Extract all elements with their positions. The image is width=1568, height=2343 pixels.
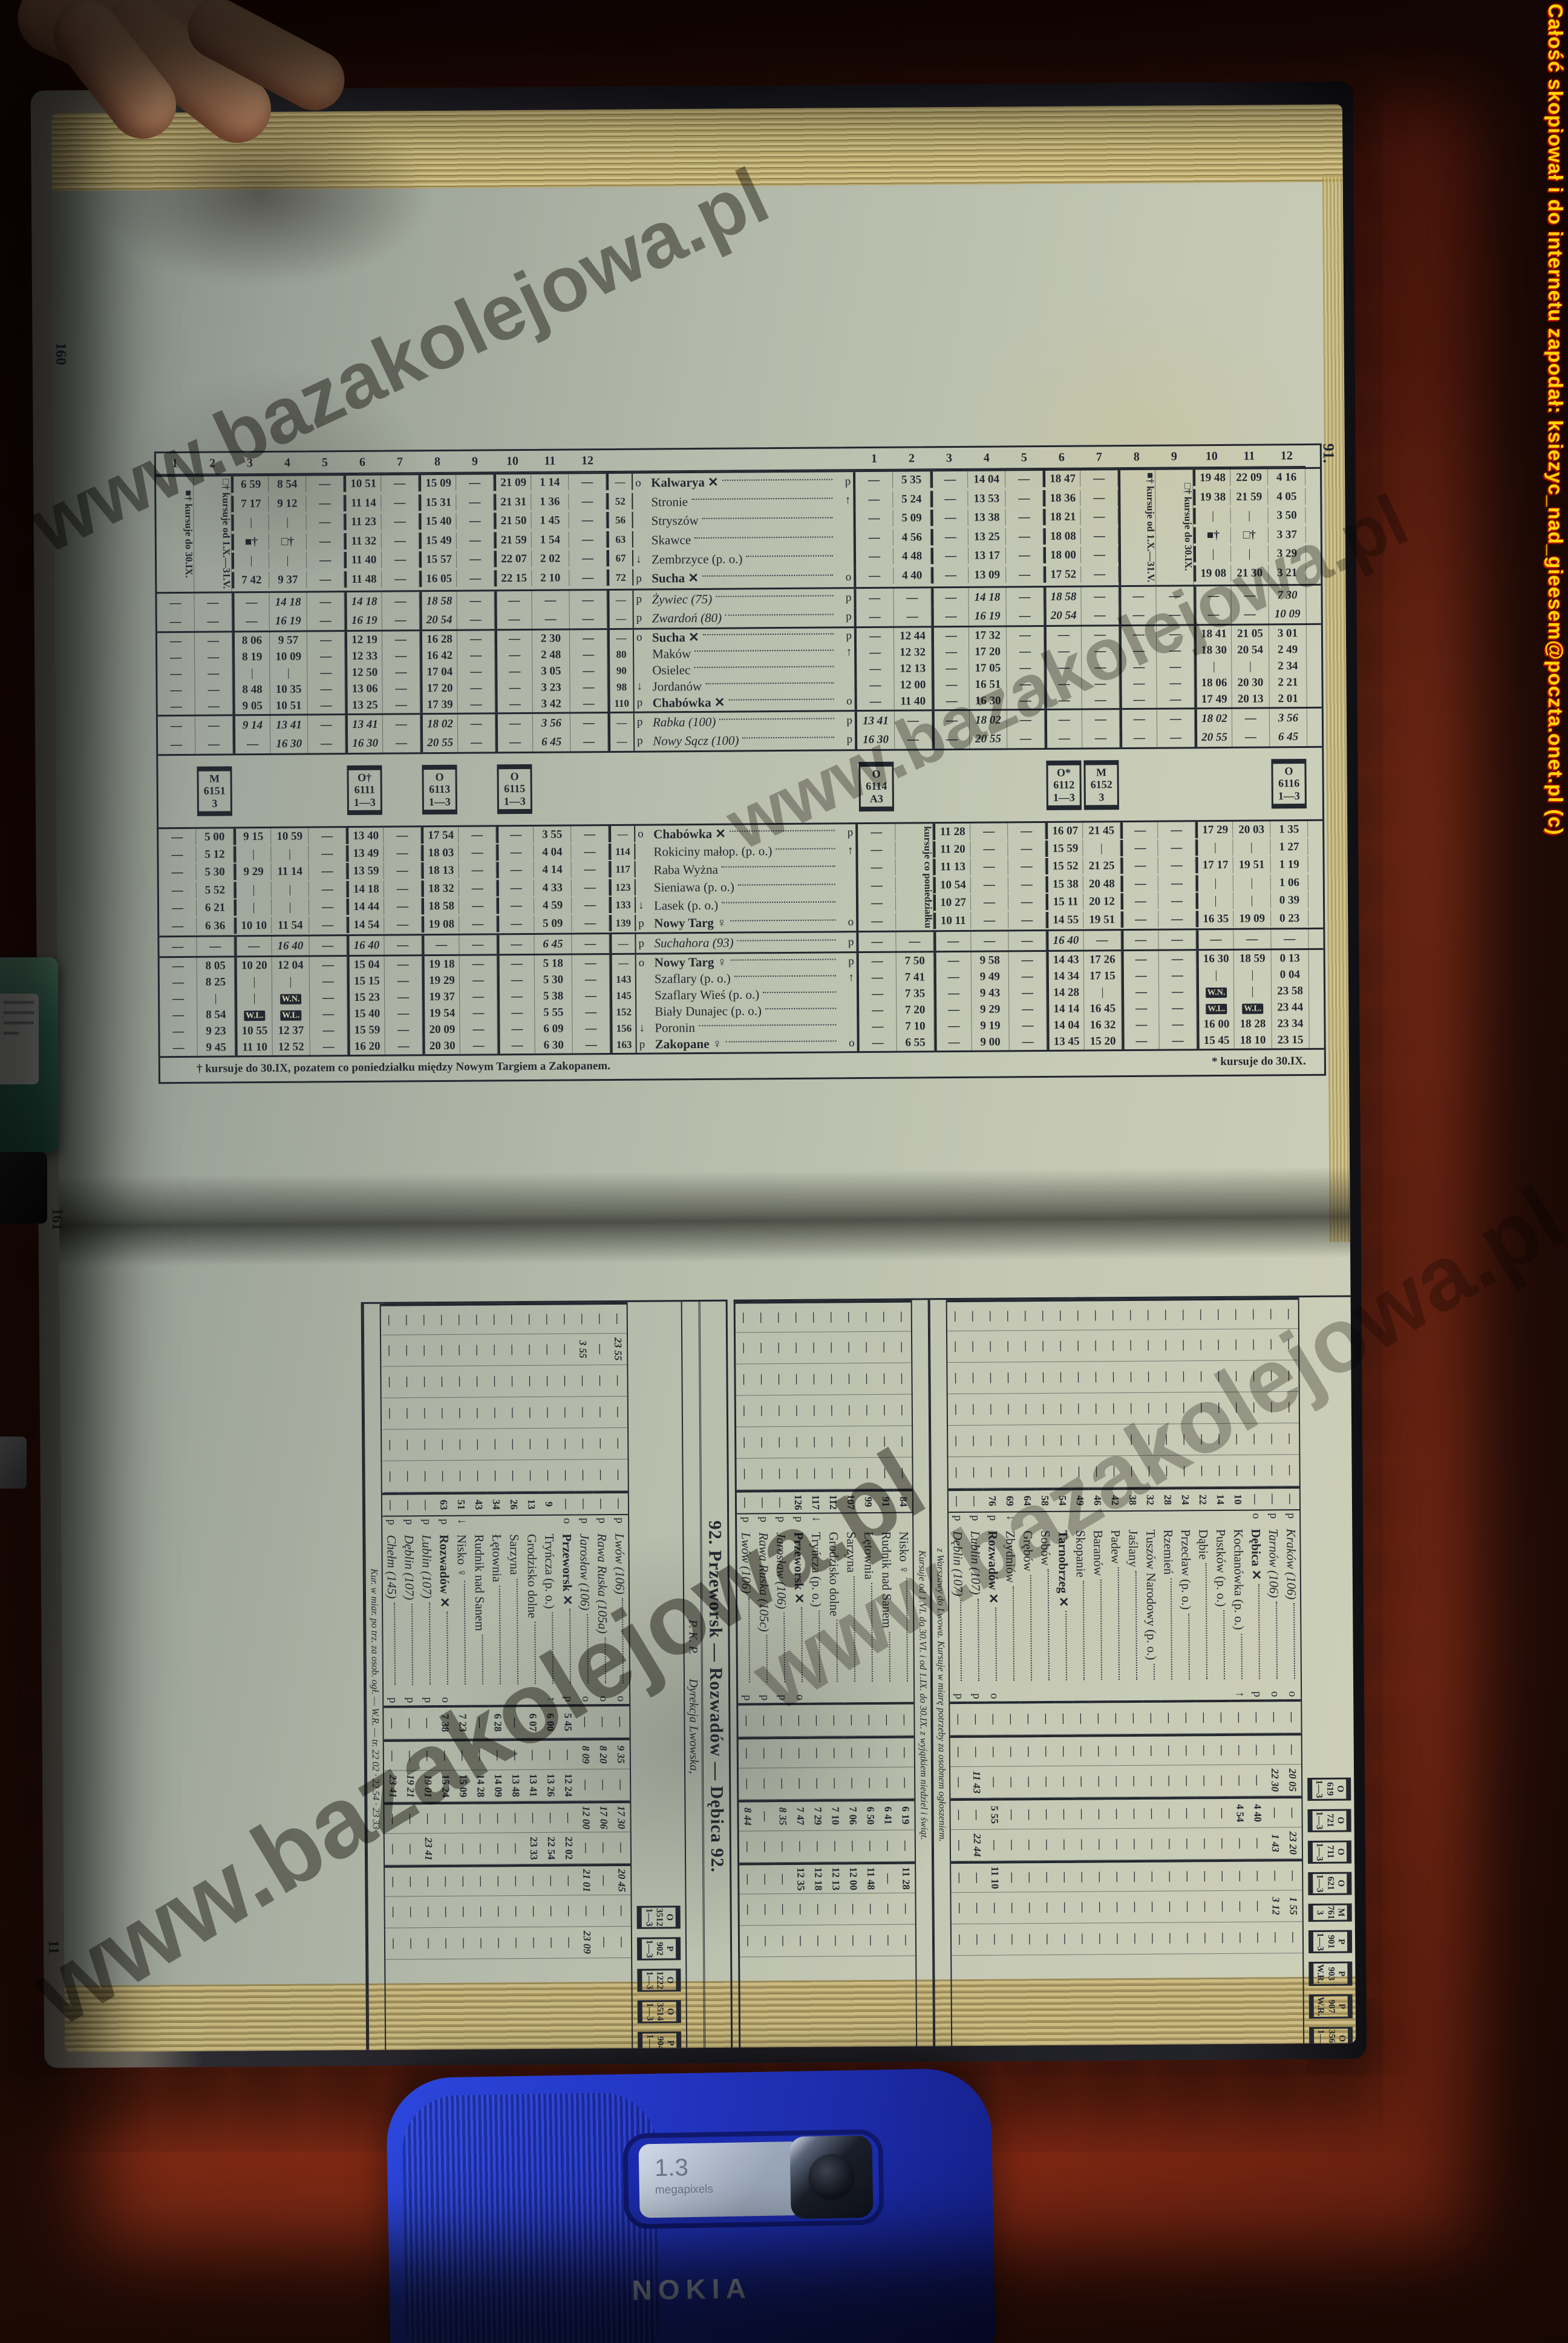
time-cell: — xyxy=(844,1830,862,1862)
time-cell: — xyxy=(969,1924,987,1956)
time-cell: — xyxy=(572,934,609,953)
station-cell: pPrzeworsk ✕o xyxy=(789,1514,808,1705)
time-cell: — xyxy=(1158,1393,1176,1424)
km-cell: 145 xyxy=(610,988,636,1004)
time-cell: — xyxy=(1044,626,1082,643)
time-cell: 23 55 xyxy=(609,1334,627,1365)
time-cell: — xyxy=(532,591,569,609)
time-cell: — xyxy=(402,1739,419,1771)
time-cell: — xyxy=(1161,1702,1178,1734)
station-cell: Stronie↑ xyxy=(633,491,855,512)
time-cell: | xyxy=(234,846,271,862)
time-cell: 13 09 xyxy=(969,566,1006,583)
km-cell: — xyxy=(400,1492,417,1516)
time-cell: 13 49 xyxy=(346,845,384,862)
time-cell: 18 41 xyxy=(1194,625,1232,641)
time-cell: — xyxy=(457,680,495,696)
time-cell: — xyxy=(195,716,233,735)
time-cell: — xyxy=(1082,675,1119,692)
station-name: Nisko ♀ xyxy=(897,1532,912,1575)
dotted-leader xyxy=(1188,1613,1190,1679)
time-cell: | xyxy=(1230,508,1268,524)
time-cell: — xyxy=(1126,1797,1144,1829)
time-cell: — xyxy=(557,1334,574,1365)
time-cell: — xyxy=(456,1865,473,1896)
time-cell: — xyxy=(310,1038,348,1055)
station-cell: Tuszów Narodowy (p. o.) xyxy=(1142,1512,1160,1703)
time-cell: — xyxy=(384,936,422,954)
time-cell: 18 06 xyxy=(1194,674,1232,690)
time-cell: — xyxy=(1231,1702,1249,1734)
dotted-leader xyxy=(691,498,832,500)
dotted-leader xyxy=(694,666,834,669)
time-cell: 16 30 xyxy=(1197,951,1234,967)
train-number-box: O61161—3 xyxy=(1271,759,1307,808)
time-cell: — xyxy=(771,1364,789,1395)
time-cell xyxy=(606,448,855,472)
time-cell: — xyxy=(307,533,344,549)
station-cell: pRawa Ruska (105a)o xyxy=(593,1515,612,1706)
dotted-leader xyxy=(1030,1575,1032,1680)
station-cell: Jaślany xyxy=(1124,1512,1143,1703)
time-cell: 21 30 xyxy=(1231,565,1269,581)
station-name: Jarosław (106) xyxy=(774,1532,789,1609)
time-cell: 21 45 xyxy=(1083,822,1120,839)
departure-marker: p xyxy=(578,1518,591,1533)
time-cell: — xyxy=(495,663,532,679)
time-cell: — xyxy=(437,1833,455,1865)
station-name: Lwów (106) xyxy=(739,1532,754,1593)
time-cell: — xyxy=(569,512,607,528)
station-cell: ↓Jordanów xyxy=(634,677,857,695)
column-header: 5 xyxy=(1005,447,1043,469)
time-cell: — xyxy=(931,548,969,564)
time-cell: □† xyxy=(1231,526,1269,543)
km-cell: — xyxy=(609,825,635,842)
time-cell: — xyxy=(950,1767,968,1798)
arrival-marker: p xyxy=(386,1688,399,1703)
station-name: Chabówka ✕ xyxy=(653,826,726,842)
time-cell: — xyxy=(1197,1922,1215,1954)
dotted-leader xyxy=(446,1611,448,1685)
time-cell: — xyxy=(1263,1329,1281,1360)
dotted-leader xyxy=(694,536,833,539)
time-cell: — xyxy=(1009,1001,1047,1017)
time-cell: — xyxy=(569,591,607,609)
time-cell: — xyxy=(856,548,893,565)
time-cell: — xyxy=(931,588,969,606)
dotted-leader xyxy=(517,1579,518,1684)
time-cell: — xyxy=(1044,643,1082,659)
station-cell: pRawa Ruska (105c)p xyxy=(754,1514,773,1705)
time-cell: — xyxy=(160,974,197,991)
time-cell: — xyxy=(1008,931,1046,950)
departure-marker: ↓ xyxy=(455,1519,468,1535)
time-cell: 3 21 xyxy=(1269,565,1306,581)
station-cell: Łętownia xyxy=(488,1516,507,1707)
time-cell: — xyxy=(459,827,496,843)
time-cell: W.L. xyxy=(235,1006,272,1023)
time-cell: — xyxy=(739,1768,756,1800)
time-cell: — xyxy=(457,513,494,529)
time-cell: — xyxy=(1121,893,1158,909)
time-cell: 4 16 xyxy=(1268,469,1305,485)
time-cell: — xyxy=(572,1020,610,1037)
time-cell: — xyxy=(490,1801,508,1833)
column-header: 10 xyxy=(1193,446,1230,468)
station-cell: Kochanówka (p. o.)↑ xyxy=(1229,1511,1248,1702)
time-cell: — xyxy=(1001,1457,1019,1488)
time-cell: — xyxy=(1281,1360,1299,1392)
time-cell: — xyxy=(1229,1424,1246,1455)
vertical-note: ■† kursuje do 30.IX. xyxy=(156,477,194,592)
time-cell: — xyxy=(1018,1362,1036,1394)
metal-clip xyxy=(0,1437,27,1489)
time-cell: 1 35 xyxy=(1270,821,1308,837)
time-cell: — xyxy=(308,715,345,734)
km-cell: — xyxy=(575,1491,593,1515)
dotted-leader xyxy=(737,939,836,941)
time-cell: — xyxy=(455,1802,472,1833)
time-cell: | xyxy=(1084,984,1122,1000)
dotted-leader xyxy=(719,718,834,720)
time-cell: — xyxy=(754,1427,771,1458)
time-cell: 2 34 xyxy=(1269,658,1307,674)
time-cell: — xyxy=(1000,1331,1018,1362)
time-cell: — xyxy=(1108,1703,1126,1734)
time-cell: — xyxy=(416,1335,434,1366)
time-cell: 11 14 xyxy=(272,863,309,880)
train-number-box: O12221—3 xyxy=(638,1968,681,1992)
time-cell: 9 58 xyxy=(972,952,1009,969)
time-cell: 23 34 xyxy=(1272,1015,1309,1032)
time-cell: — xyxy=(1119,642,1157,658)
time-cell: — xyxy=(1019,1457,1036,1488)
time-cell: 5 24 xyxy=(893,491,930,507)
station-cell: Łętownia xyxy=(860,1513,878,1705)
time-cell: — xyxy=(1232,605,1269,623)
station-cell: pRozwadów ✕o xyxy=(984,1513,1002,1704)
time-cell: 15 57 xyxy=(419,551,457,568)
time-cell: — xyxy=(1109,1797,1126,1829)
time-cell: — xyxy=(1044,659,1082,675)
time-cell: — xyxy=(806,1301,823,1332)
departure-marker: p xyxy=(792,1516,805,1532)
time-cell: — xyxy=(490,1833,508,1864)
time-cell: — xyxy=(1056,1798,1074,1829)
dotted-leader xyxy=(429,1602,431,1685)
time-cell: — xyxy=(1119,626,1157,642)
time-cell: 9 29 xyxy=(972,1001,1009,1018)
time-cell: 23 41 xyxy=(420,1833,437,1865)
time-cell: | xyxy=(234,899,272,916)
time-cell: — xyxy=(160,1040,198,1056)
time-cell: — xyxy=(1053,1362,1071,1394)
time-cell: — xyxy=(158,828,196,845)
time-cell: — xyxy=(610,1397,627,1428)
time-cell: — xyxy=(859,1395,877,1426)
station-cell: pLublin (107)p xyxy=(418,1516,437,1708)
dotted-leader xyxy=(1154,1663,1155,1679)
time-cell: | xyxy=(1233,874,1271,891)
time-cell: — xyxy=(489,1738,507,1770)
time-cell: — xyxy=(774,1705,791,1737)
time-cell: — xyxy=(384,880,422,897)
time-cell: — xyxy=(934,952,972,969)
time-cell: — xyxy=(1073,1703,1091,1735)
time-cell: — xyxy=(459,862,497,879)
time-cell: — xyxy=(420,1865,438,1896)
time-cell: — xyxy=(828,1925,845,1956)
time-cell: — xyxy=(572,915,609,931)
time-cell: — xyxy=(965,1426,983,1457)
station-cell: ↓Lasek (p. o.) xyxy=(636,896,858,915)
time-cell: 5 09 xyxy=(893,510,930,526)
time-cell: — xyxy=(384,899,422,915)
km-cell: 58 xyxy=(1036,1488,1054,1512)
time-cell: — xyxy=(757,1863,774,1894)
time-cell: — xyxy=(1211,1361,1229,1392)
departure-marker: ↓ xyxy=(1004,1515,1017,1530)
time-cell: — xyxy=(472,1833,490,1864)
time-cell: — xyxy=(754,1364,771,1395)
departure-marker: p xyxy=(757,1516,770,1532)
time-cell: 11 48 xyxy=(862,1862,880,1893)
time-cell: 4 14 xyxy=(534,862,572,878)
dotted-leader xyxy=(722,866,835,868)
time-cell: — xyxy=(1018,1425,1036,1457)
time-cell: — xyxy=(195,649,232,665)
station-cell: Sobów xyxy=(1036,1512,1055,1703)
km-cell: 72 xyxy=(607,569,633,586)
time-cell: — xyxy=(307,648,345,664)
departure-marker: p xyxy=(969,1515,982,1531)
time-cell: — xyxy=(930,490,968,506)
time-cell: — xyxy=(381,475,419,491)
arrival-marker: ↑ xyxy=(544,1688,557,1702)
time-cell: — xyxy=(1082,659,1119,675)
time-cell: — xyxy=(1006,588,1044,606)
time-cell: — xyxy=(310,957,347,973)
time-cell: 13 25 xyxy=(345,696,383,713)
station-name: Jarosław (106) xyxy=(577,1533,593,1610)
time-cell: — xyxy=(454,1739,472,1771)
time-cell: 14 44 xyxy=(347,899,384,915)
time-cell: — xyxy=(593,1460,610,1491)
time-cell: 11 10 xyxy=(986,1861,1004,1893)
time-cell: — xyxy=(435,1461,452,1492)
time-cell: — xyxy=(806,1364,824,1395)
time-cell: — xyxy=(825,1458,842,1489)
time-cell: — xyxy=(1073,1766,1091,1798)
column-header: 12 xyxy=(569,450,606,472)
time-cell: — xyxy=(572,897,609,913)
time-cell: — xyxy=(1122,951,1159,968)
departure-marker: ↓ xyxy=(636,680,652,693)
column-header: 4 xyxy=(968,447,1005,469)
time-cell: | xyxy=(1197,967,1234,983)
time-cell: — xyxy=(1089,1456,1106,1487)
time-cell: — xyxy=(855,472,893,488)
time-cell: — xyxy=(1284,1733,1301,1765)
time-cell: 18 47 xyxy=(1043,471,1080,487)
time-cell: 10 54 xyxy=(933,877,971,893)
time-cell: — xyxy=(195,681,232,698)
time-cell: — xyxy=(1123,1299,1140,1330)
margin-number-161: 161 xyxy=(48,1208,65,1231)
time-cell: — xyxy=(1121,876,1158,892)
time-cell: — xyxy=(857,628,894,644)
time-cell: — xyxy=(1074,1860,1091,1892)
time-cell: 14 18 xyxy=(344,592,382,611)
time-cell: — xyxy=(1106,1424,1123,1456)
time-cell: 7 29 xyxy=(809,1800,827,1831)
time-cell: — xyxy=(1021,1798,1039,1829)
dotted-leader xyxy=(995,1607,997,1680)
time-cell: — xyxy=(572,861,609,877)
time-cell: — xyxy=(469,1397,487,1429)
time-cell: — xyxy=(523,1429,540,1460)
km-cell: — xyxy=(608,732,635,750)
time-cell: — xyxy=(1070,1299,1088,1331)
time-cell: — xyxy=(1091,1860,1109,1892)
arrival-marker: o xyxy=(838,695,852,708)
time-cell: — xyxy=(1123,1330,1140,1362)
departure-marker: ↓ xyxy=(809,1516,823,1532)
time-cell: | xyxy=(1232,658,1269,674)
time-cell: — xyxy=(859,1018,897,1035)
time-cell: — xyxy=(495,732,533,751)
station-name: Tarnobrzeg ✕ xyxy=(1056,1530,1071,1607)
time-cell: — xyxy=(1008,912,1046,928)
time-cell: — xyxy=(572,879,609,896)
time-cell: — xyxy=(382,647,420,664)
station-name: Dęblin (107) xyxy=(950,1531,966,1596)
time-cell: — xyxy=(809,1705,826,1737)
km-cell: 63 xyxy=(607,531,633,548)
station-cell: Rudnik nad Sanem xyxy=(877,1513,896,1705)
time-cell: — xyxy=(159,882,197,899)
time-cell: — xyxy=(1081,566,1119,582)
time-cell: — xyxy=(195,698,233,714)
km-cell: 98 xyxy=(607,678,634,695)
time-cell: 23 41 xyxy=(385,1771,402,1802)
time-cell: — xyxy=(857,693,895,709)
time-cell: 20 55 xyxy=(970,729,1007,748)
time-cell: — xyxy=(740,1894,757,1925)
time-cell: — xyxy=(1123,1393,1141,1424)
time-cell: — xyxy=(879,1768,897,1799)
km-cell: 24 xyxy=(1177,1487,1194,1511)
time-cell: — xyxy=(457,591,494,610)
time-cell: — xyxy=(307,552,344,568)
time-cell: — xyxy=(987,1893,1004,1924)
time-cell: 12 50 xyxy=(345,664,382,680)
train-number-box: P9021—3 xyxy=(637,1937,681,1961)
time-cell: 22 54 xyxy=(543,1833,560,1864)
time-cell: 5 55 xyxy=(986,1798,1004,1830)
dotted-leader xyxy=(1171,1578,1172,1679)
departure-marker: p xyxy=(636,572,652,585)
time-cell: 18 30 xyxy=(1194,641,1232,658)
time-cell: — xyxy=(158,716,195,735)
time-cell: — xyxy=(403,1896,420,1928)
time-cell: 16 40 xyxy=(1046,931,1083,950)
time-cell: 22 09 xyxy=(1230,469,1268,485)
time-cell: — xyxy=(757,1831,774,1863)
time-cell: — xyxy=(457,532,494,548)
time-cell: 2 10 xyxy=(532,569,569,586)
arrival-marker: p xyxy=(970,1685,983,1699)
time-cell: | xyxy=(271,846,309,862)
time-cell: — xyxy=(1081,587,1119,606)
time-cell: — xyxy=(1197,1860,1214,1891)
time-cell: — xyxy=(1045,710,1082,729)
time-cell: — xyxy=(1231,586,1269,605)
time-cell: — xyxy=(1036,1394,1053,1425)
time-cell: 11 54 xyxy=(272,917,309,933)
km-cell: 49 xyxy=(1071,1488,1089,1512)
time-cell: — xyxy=(1008,841,1045,857)
time-cell: 7 23 xyxy=(454,1708,472,1739)
time-cell: — xyxy=(1281,1392,1299,1423)
time-cell: — xyxy=(1123,1424,1141,1456)
time-cell: 19 51 xyxy=(1083,911,1121,928)
time-cell: 9 37 xyxy=(269,571,307,588)
station-cell: ↓Nisko ♀ xyxy=(453,1516,472,1708)
time-cell: — xyxy=(736,1427,754,1458)
station-name: Maków xyxy=(652,646,691,661)
time-cell: — xyxy=(880,1862,897,1893)
time-cell: — xyxy=(383,696,420,713)
time-cell: 14 34 xyxy=(1047,968,1084,985)
time-cell: — xyxy=(1266,1733,1284,1765)
time-cell: 23 09 xyxy=(578,1927,596,1958)
time-cell: 5 18 xyxy=(535,955,572,972)
time-cell: 19 18 xyxy=(422,956,460,972)
station-name: Raba Wyżna xyxy=(654,862,718,877)
time-cell: — xyxy=(495,713,533,732)
station-cell: oDębica ✕p xyxy=(1247,1510,1266,1702)
arrival-marker: ↑ xyxy=(838,844,853,857)
time-cell: 12 19 xyxy=(345,631,382,647)
time-cell: — xyxy=(1197,1797,1214,1828)
time-cell: — xyxy=(1157,691,1195,707)
time-cell: 15 59 xyxy=(347,1022,385,1038)
time-cell: — xyxy=(856,568,893,584)
time-cell: — xyxy=(437,1802,455,1833)
time-cell: 7 35 xyxy=(897,986,934,1002)
km-cell: — xyxy=(607,590,633,609)
time-cell: — xyxy=(505,1397,522,1429)
time-cell: 1 55 xyxy=(1285,1890,1302,1922)
train-number-box: P9041—2 xyxy=(638,2031,682,2052)
station-name: Chabówka ✕ xyxy=(653,695,725,710)
time-cell: — xyxy=(569,569,607,586)
time-cell: 4 04 xyxy=(534,844,571,860)
time-cell: — xyxy=(1156,586,1194,605)
time-cell: 23 44 xyxy=(1272,999,1309,1015)
time-cell: — xyxy=(1142,1456,1159,1487)
time-cell: — xyxy=(613,1769,630,1801)
time-cell: 11 28 xyxy=(897,1862,915,1893)
time-cell: — xyxy=(855,510,893,526)
dotted-leader xyxy=(569,1609,571,1684)
time-cell: — xyxy=(403,1865,420,1896)
time-cell: — xyxy=(437,1739,454,1771)
time-cell: — xyxy=(1158,1362,1176,1393)
time-cell: — xyxy=(809,1737,826,1768)
